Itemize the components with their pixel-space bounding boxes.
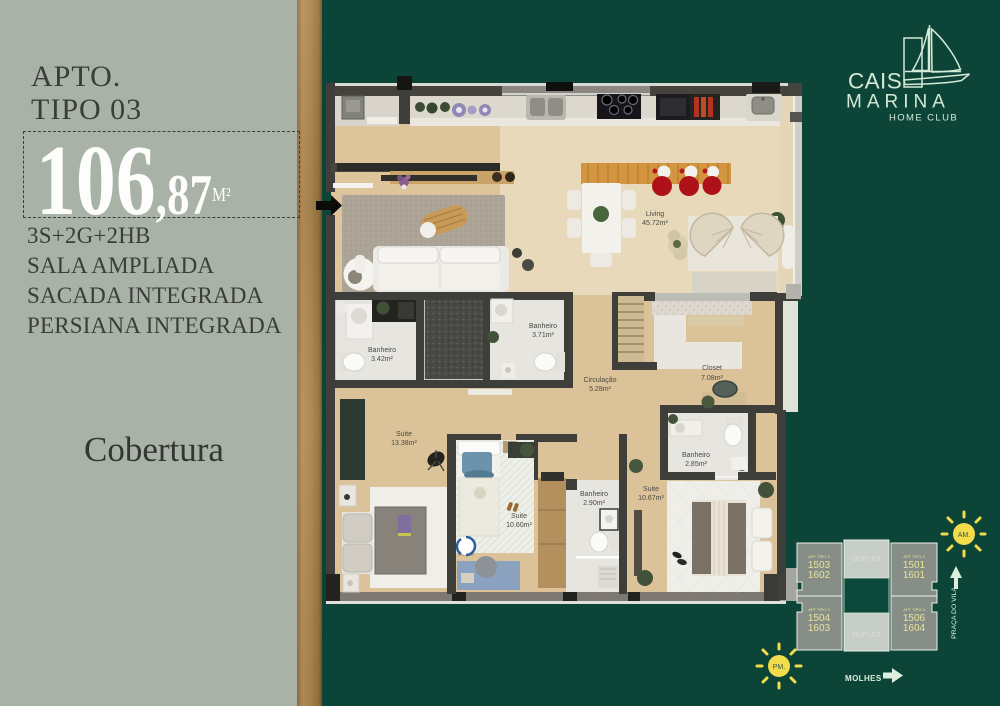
svg-text:10.67m²: 10.67m²	[638, 495, 664, 502]
svg-text:Banheiro: Banheiro	[682, 452, 710, 459]
svg-text:Banheiro: Banheiro	[529, 323, 557, 330]
svg-text:APT TIPO 3: APT TIPO 3	[903, 607, 925, 612]
svg-text:APT TIPO 3: APT TIPO 3	[808, 607, 830, 612]
svg-text:3.71m²: 3.71m²	[532, 332, 554, 339]
svg-text:HOME CLUB: HOME CLUB	[889, 113, 958, 124]
svg-text:5.28m²: 5.28m²	[589, 386, 611, 393]
svg-text:Banheiro: Banheiro	[368, 347, 396, 354]
svg-text:DUPLEX: DUPLEX	[852, 632, 880, 639]
svg-text:Suite: Suite	[643, 486, 659, 493]
svg-text:2.85m²: 2.85m²	[685, 461, 707, 468]
svg-text:PM.: PM.	[773, 664, 786, 671]
svg-text:APT TIPO 3: APT TIPO 3	[808, 554, 830, 559]
svg-text:1602: 1602	[808, 570, 831, 581]
svg-text:Circulação: Circulação	[583, 377, 616, 384]
svg-text:2.90m²: 2.90m²	[583, 500, 605, 507]
svg-text:APT TIPO 3: APT TIPO 3	[903, 554, 925, 559]
svg-text:AM.: AM.	[958, 532, 971, 539]
svg-text:Banheiro: Banheiro	[580, 491, 608, 498]
svg-text:Closet: Closet	[702, 365, 722, 372]
svg-text:45.72m²: 45.72m²	[642, 220, 668, 227]
svg-text:1601: 1601	[903, 570, 926, 581]
svg-text:1603: 1603	[808, 623, 831, 634]
svg-text:Living: Living	[646, 211, 664, 218]
svg-text:7.08m²: 7.08m²	[701, 375, 723, 382]
svg-text:PRAÇA DO VILA: PRAÇA DO VILA	[951, 587, 958, 639]
svg-text:MOLHES: MOLHES	[845, 674, 882, 683]
svg-text:CAIS: CAIS	[848, 69, 902, 94]
svg-text:13.38m²: 13.38m²	[391, 440, 417, 447]
svg-text:3.42m²: 3.42m²	[371, 356, 393, 363]
svg-text:Suite: Suite	[511, 513, 527, 520]
svg-text:10.60m²: 10.60m²	[506, 522, 532, 529]
svg-text:1604: 1604	[903, 623, 926, 634]
svg-text:Suite: Suite	[396, 431, 412, 438]
svg-text:DUPLEX: DUPLEX	[852, 556, 880, 563]
svg-text:MARINA: MARINA	[846, 92, 950, 113]
